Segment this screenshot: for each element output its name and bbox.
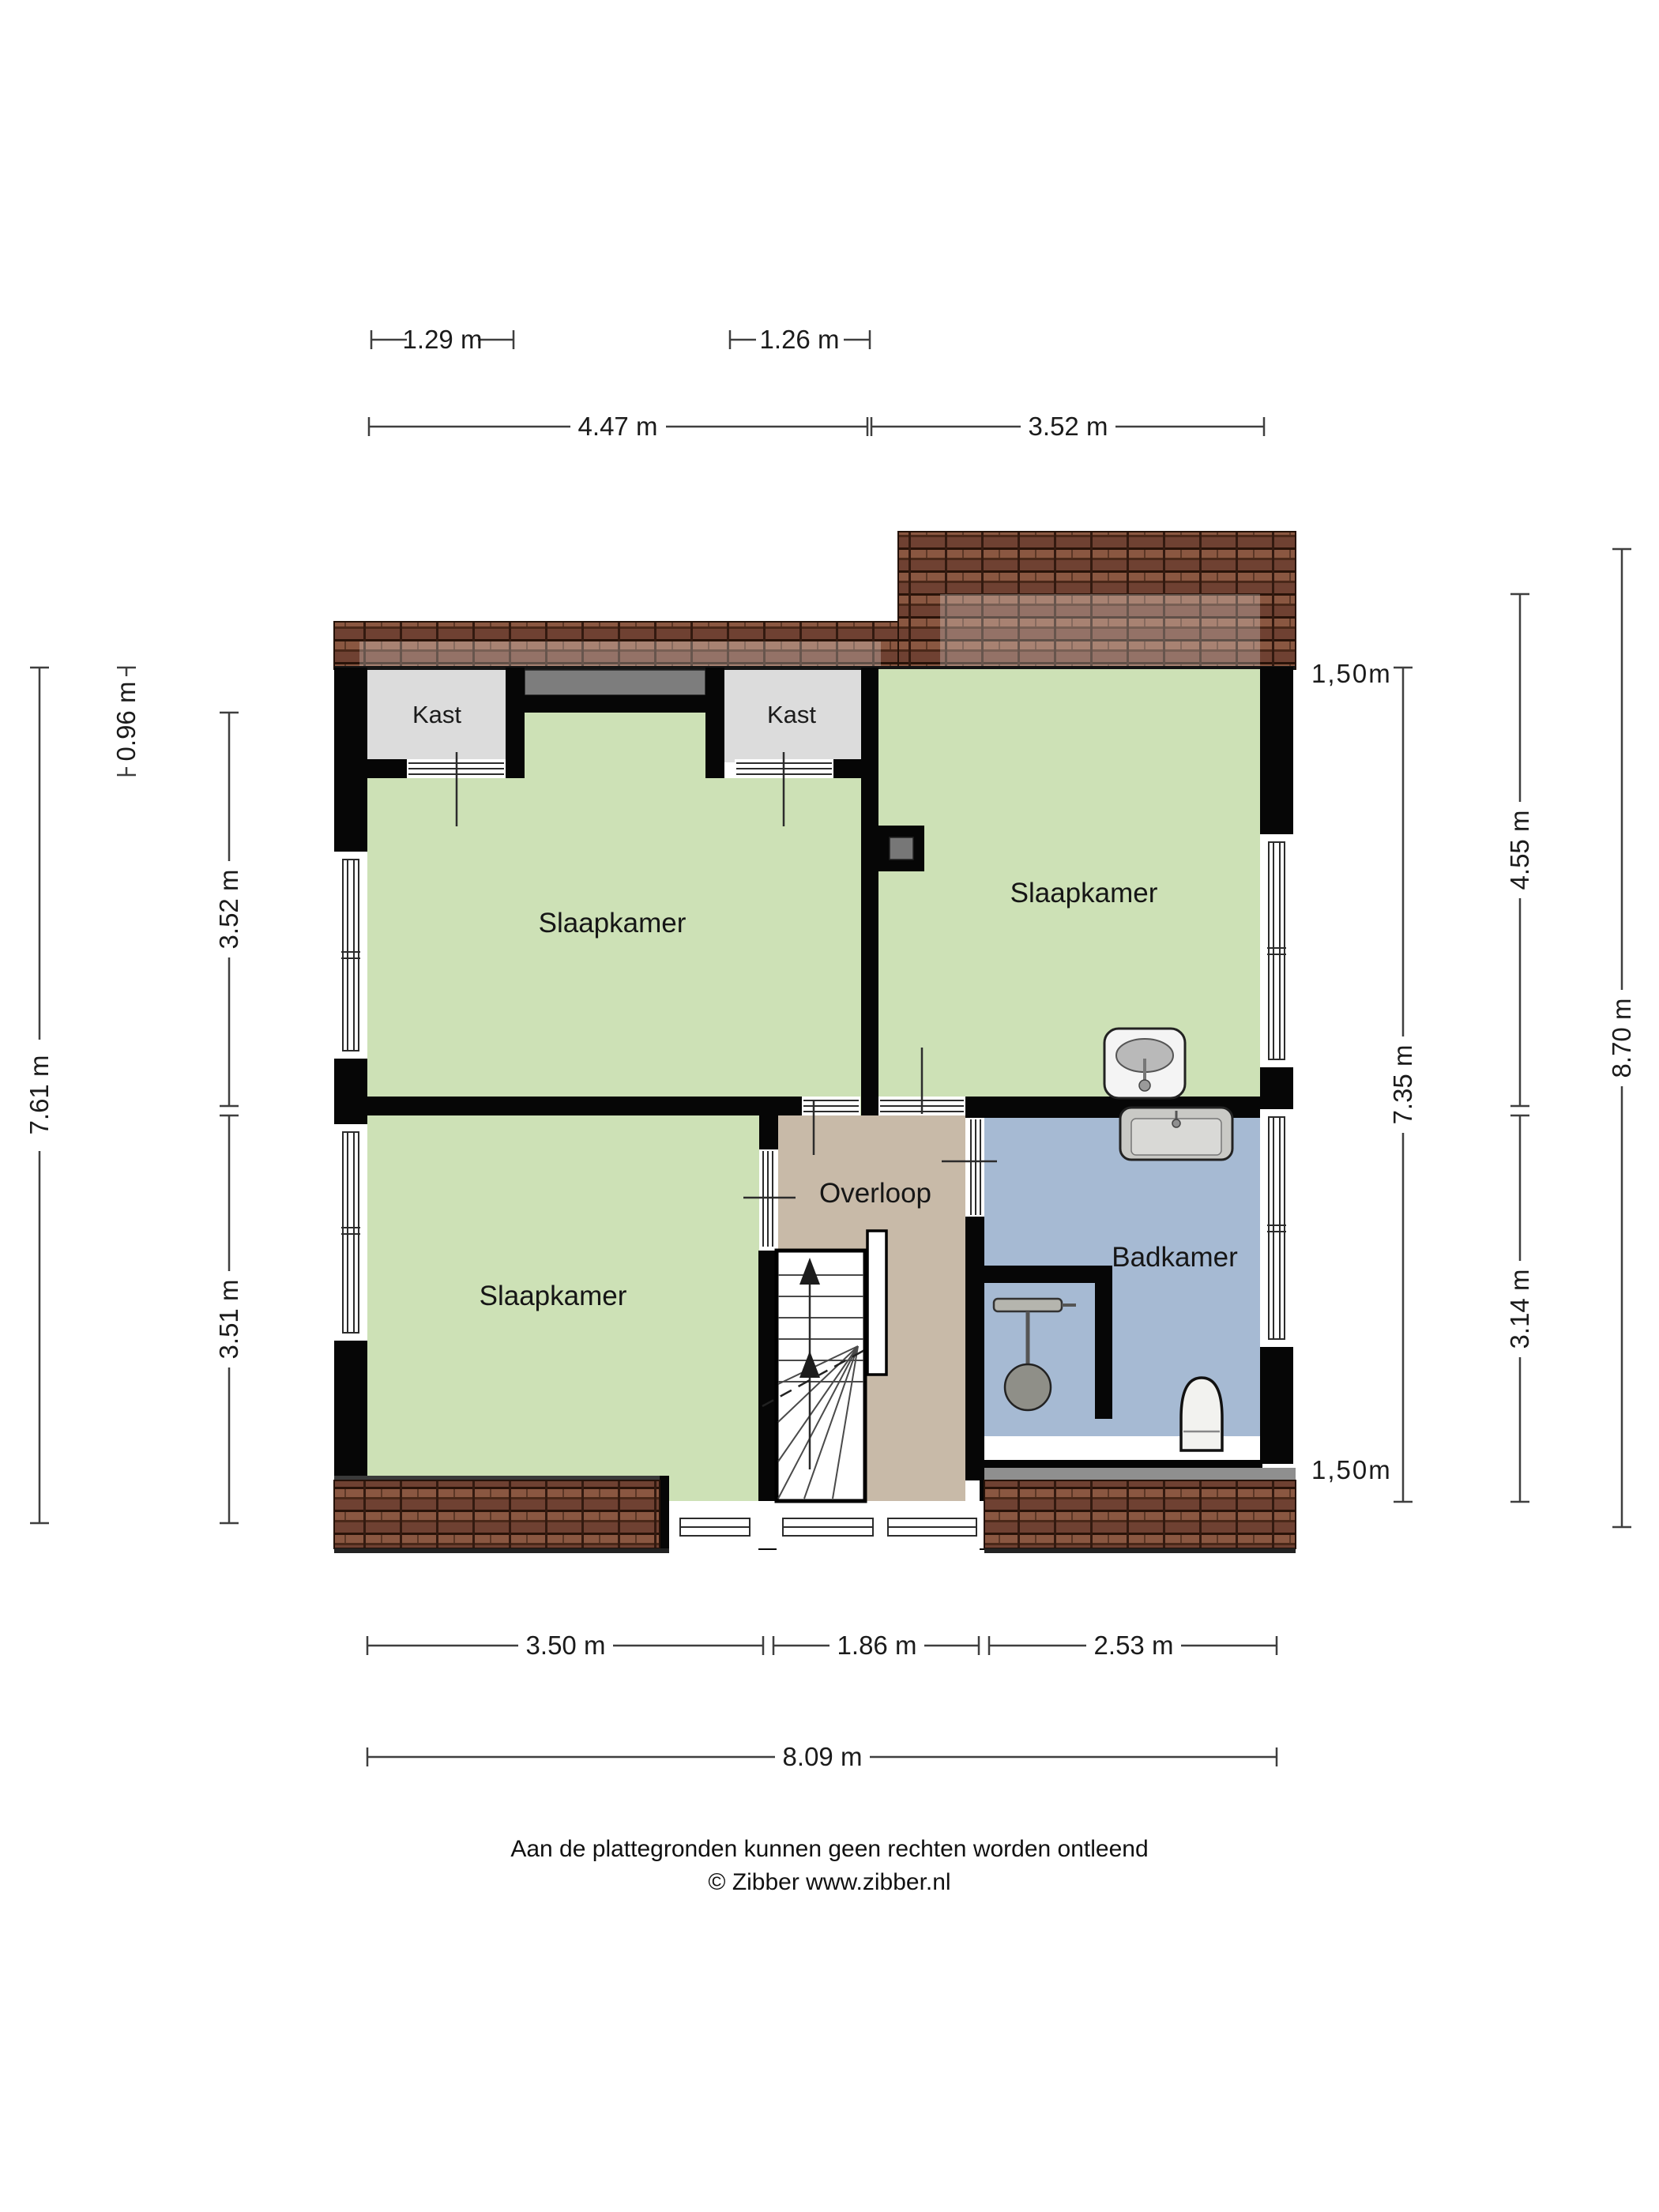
dim-bottom-350: 3.50 m	[367, 1631, 763, 1660]
roof-recess-gray	[525, 670, 705, 713]
svg-text:1.26 m: 1.26 m	[760, 325, 840, 354]
banister	[867, 1231, 886, 1375]
floorplan-svg: Slaapkamer Slaapkamer Slaapkamer Kast Ka…	[0, 0, 1659, 2212]
svg-text:1.29 m: 1.29 m	[403, 325, 483, 354]
dim-top-352: 3.52 m	[871, 412, 1264, 441]
label-closet-left: Kast	[412, 701, 461, 728]
roof-top-left	[334, 622, 898, 669]
svg-text:4.47 m: 4.47 m	[578, 412, 658, 441]
label-landing: Overloop	[819, 1178, 931, 1209]
dim-left-761: 7.61 m	[24, 668, 54, 1523]
dim-bottom-186: 1.86 m	[773, 1631, 979, 1660]
dim-top-126: 1.26 m	[730, 325, 870, 354]
dim-top-447: 4.47 m	[369, 412, 867, 441]
roof-extension-top-right	[898, 532, 1296, 669]
toilet	[1181, 1378, 1222, 1450]
svg-text:3.14 m: 3.14 m	[1505, 1270, 1534, 1349]
svg-text:8.70 m: 8.70 m	[1607, 999, 1636, 1078]
label-bathroom: Badkamer	[1112, 1242, 1238, 1273]
window-right-bedroom	[1260, 834, 1293, 1067]
dim-right-735: 7.35 m	[1388, 668, 1417, 1502]
stairs	[762, 1251, 883, 1501]
vanity-sink-bathroom	[1120, 1108, 1232, 1160]
label-bedroom-topleft: Slaapkamer	[539, 908, 687, 939]
floorplan-page: Slaapkamer Slaapkamer Slaapkamer Kast Ka…	[0, 0, 1659, 2212]
dim-right-314: 3.14 m	[1505, 1115, 1534, 1502]
dim-left-096: 0.96 m	[111, 668, 141, 775]
dim-right-455: 4.55 m	[1505, 594, 1534, 1106]
window-left-top	[334, 852, 367, 1059]
window-band-bottom	[669, 1501, 984, 1548]
roof-bottom-left	[334, 1476, 669, 1553]
svg-text:3.52 m: 3.52 m	[1029, 412, 1108, 441]
dim-left-351: 3.51 m	[214, 1115, 243, 1523]
footer-copyright: © Zibber www.zibber.nl	[708, 1869, 950, 1895]
svg-text:7.35 m: 7.35 m	[1388, 1045, 1417, 1125]
dim-right-870: 8.70 m	[1607, 549, 1636, 1527]
label-bedroom-topright: Slaapkamer	[1010, 878, 1158, 908]
footer-disclaimer: Aan de plattegronden kunnen geen rechten…	[510, 1836, 1148, 1862]
svg-text:3.51 m: 3.51 m	[214, 1280, 243, 1360]
svg-text:4.55 m: 4.55 m	[1505, 811, 1534, 890]
label-bedroom-bottomleft: Slaapkamer	[480, 1281, 627, 1311]
svg-text:1.86 m: 1.86 m	[837, 1631, 917, 1660]
svg-text:8.09 m: 8.09 m	[783, 1742, 863, 1771]
dim-bottom-809: 8.09 m	[367, 1742, 1277, 1771]
svg-text:3.52 m: 3.52 m	[214, 870, 243, 950]
label-closet-right: Kast	[767, 701, 816, 728]
window-left-bottom	[334, 1124, 367, 1341]
washbasin-bedroom	[1104, 1029, 1185, 1098]
svg-text:7.61 m: 7.61 m	[24, 1055, 54, 1135]
svg-text:3.50 m: 3.50 m	[526, 1631, 606, 1660]
chimney-flue	[890, 837, 913, 860]
height-marker-bottom: 1,50m	[1311, 1455, 1392, 1484]
dim-bottom-253: 2.53 m	[989, 1631, 1277, 1660]
window-right-bathroom	[1260, 1109, 1293, 1347]
roof-bottom-right	[984, 1436, 1296, 1553]
height-marker-top: 1,50m	[1311, 659, 1392, 688]
svg-text:2.53 m: 2.53 m	[1094, 1631, 1174, 1660]
svg-text:0.96 m: 0.96 m	[111, 682, 141, 762]
dim-left-352: 3.52 m	[214, 713, 243, 1106]
dim-top-129: 1.29 m	[371, 325, 513, 354]
